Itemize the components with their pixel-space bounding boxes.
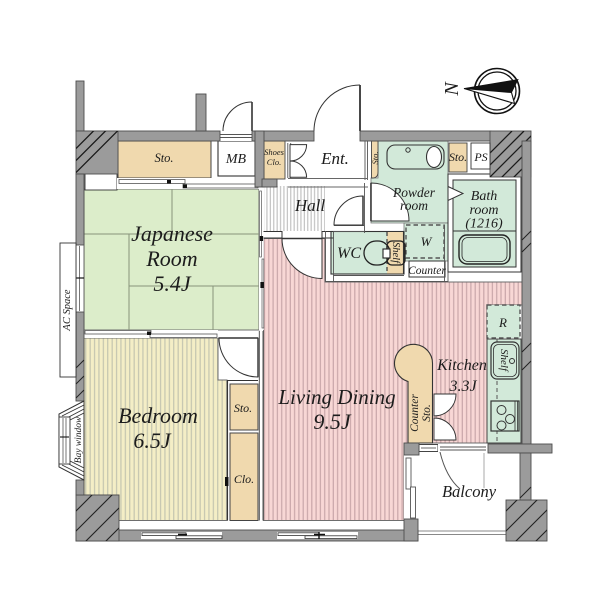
svg-text:PS: PS [473, 150, 487, 164]
svg-text:AC Space: AC Space [62, 289, 73, 331]
svg-text:Shelf: Shelf [390, 242, 401, 265]
svg-text:Counter: Counter [408, 265, 446, 277]
svg-text:5.4J: 5.4J [153, 271, 192, 296]
svg-text:R: R [498, 315, 507, 330]
svg-text:Living Dining: Living Dining [277, 385, 395, 409]
svg-text:Sto.: Sto. [370, 152, 380, 165]
svg-text:MB: MB [225, 152, 247, 167]
svg-text:Counter: Counter [409, 394, 421, 432]
svg-text:Sto.: Sto. [154, 151, 173, 165]
svg-text:Ent.: Ent. [320, 149, 349, 168]
svg-text:6.5J: 6.5J [133, 428, 172, 453]
svg-text:Shelf: Shelf [498, 349, 510, 373]
svg-text:(1216): (1216) [465, 217, 503, 232]
svg-text:Clo.: Clo. [234, 472, 254, 486]
svg-text:room: room [400, 198, 428, 213]
svg-text:Kitchen: Kitchen [436, 357, 487, 374]
svg-text:N: N [441, 81, 463, 97]
svg-text:Balcony: Balcony [442, 482, 497, 501]
svg-text:Bay window: Bay window [74, 416, 84, 463]
svg-text:Bath: Bath [471, 189, 497, 204]
svg-text:Room: Room [145, 246, 197, 271]
svg-text:9.5J: 9.5J [313, 409, 352, 434]
svg-text:Bedroom: Bedroom [118, 403, 198, 428]
svg-text:Clo.: Clo. [267, 157, 281, 167]
svg-text:Sto.: Sto. [234, 401, 252, 415]
svg-text:Sto.: Sto. [421, 404, 433, 422]
svg-text:WC: WC [337, 245, 361, 262]
svg-text:Shoes: Shoes [264, 147, 285, 157]
svg-text:3.3J: 3.3J [448, 378, 477, 395]
svg-text:W: W [421, 234, 433, 249]
svg-text:Sto.: Sto. [449, 150, 467, 164]
svg-text:Japanese: Japanese [131, 221, 213, 246]
svg-text:Hall: Hall [294, 196, 326, 215]
